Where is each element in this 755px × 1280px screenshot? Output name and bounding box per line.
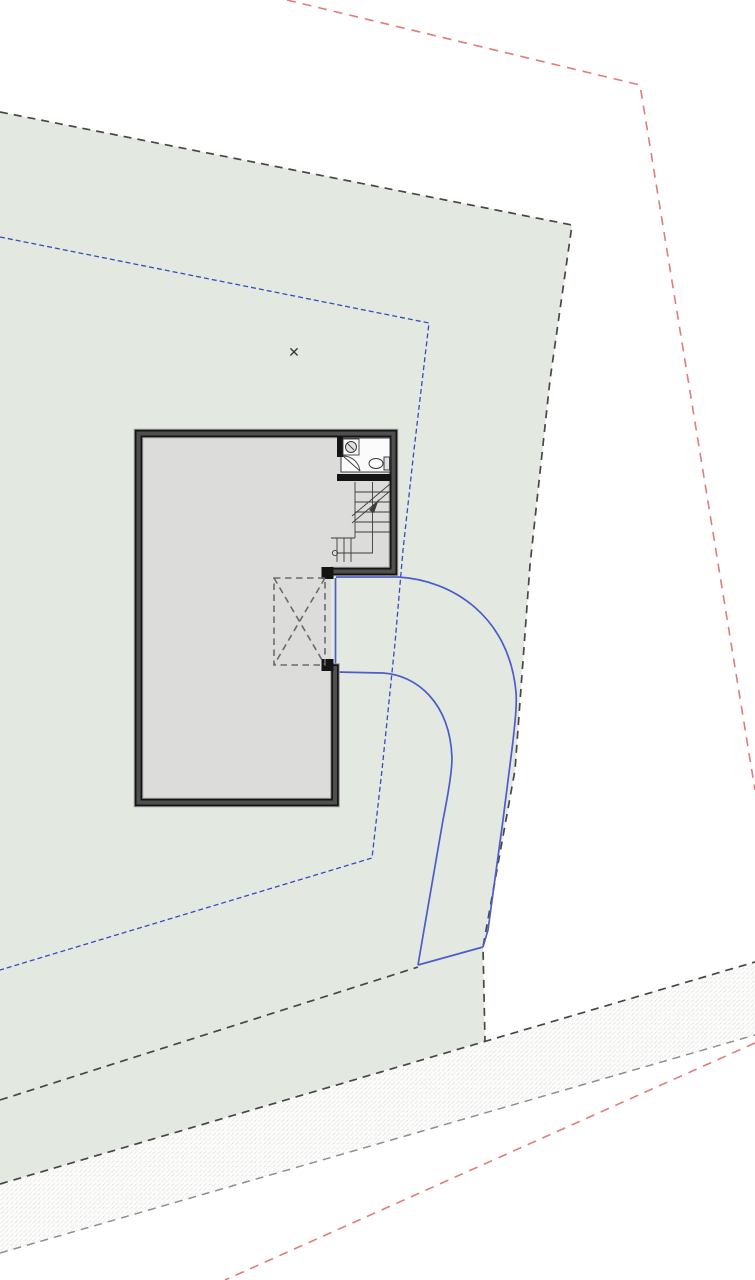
stair-head-wall	[337, 474, 390, 481]
bathroom-partition-wall	[337, 437, 343, 457]
toilet-bowl-icon	[369, 459, 383, 469]
toilet-tank-icon	[384, 457, 390, 470]
site-plan-canvas: ✕	[0, 0, 755, 1280]
bathroom	[337, 437, 390, 481]
wall-stub-lower	[322, 659, 334, 671]
survey-marker-x: ✕	[288, 345, 300, 361]
site-plan-drawing: ✕	[0, 0, 755, 1280]
